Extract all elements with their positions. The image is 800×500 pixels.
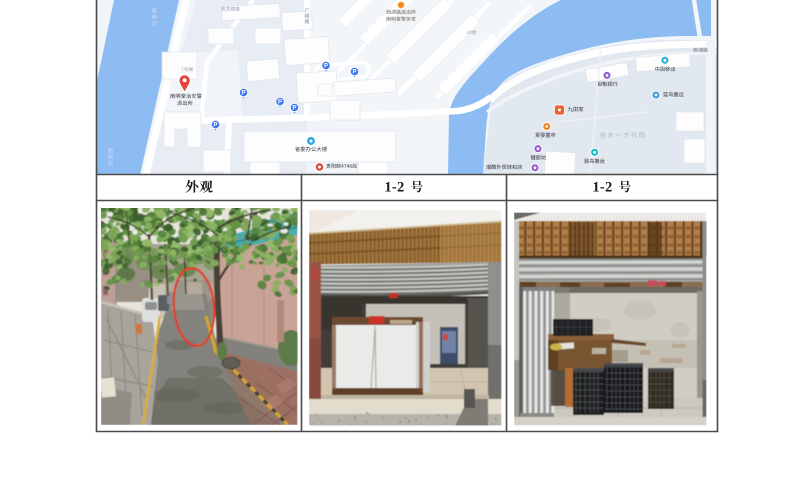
svg-text:P: P [278, 100, 282, 106]
svg-text:1-2: 1-2 [384, 180, 404, 196]
svg-text:P: P [324, 64, 328, 70]
svg-text:P: P [241, 91, 245, 97]
svg-text:1-2: 1-2 [592, 180, 612, 196]
svg-text:P: P [213, 123, 217, 129]
svg-text:P: P [352, 70, 356, 76]
svg-text:P: P [292, 106, 296, 112]
